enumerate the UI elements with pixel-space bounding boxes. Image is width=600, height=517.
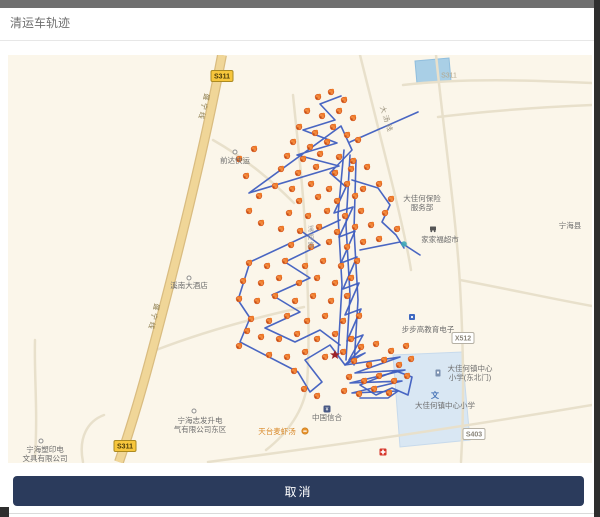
vehicle-stop-marker[interactable] — [236, 343, 242, 349]
vehicle-stop-marker[interactable] — [324, 139, 330, 145]
marker-dot — [331, 127, 333, 129]
vehicle-stop-marker[interactable] — [307, 144, 313, 150]
vehicle-stop-marker[interactable] — [396, 362, 402, 368]
marker-dot — [249, 319, 251, 321]
marker-top — [364, 378, 367, 381]
vehicle-stop-marker[interactable] — [381, 357, 387, 363]
vehicle-stop-marker[interactable] — [264, 263, 270, 269]
poi-label-text: 前达快运 — [220, 155, 250, 165]
vehicle-stop-marker[interactable] — [316, 224, 322, 230]
vehicle-stop-marker[interactable] — [294, 331, 300, 337]
vehicle-stop-marker[interactable] — [301, 386, 307, 392]
marker-top — [249, 208, 252, 211]
page-title: 清运车轨迹 — [10, 14, 70, 31]
marker-top — [299, 198, 302, 201]
vehicle-stop-marker[interactable] — [296, 124, 302, 130]
marker-top — [279, 336, 282, 339]
marker-top — [243, 278, 246, 281]
poi-label: 宁海塑印电文具有限公司 — [23, 439, 68, 463]
marker-dot — [345, 296, 347, 298]
marker-top — [310, 144, 313, 147]
vehicle-stop-marker[interactable] — [341, 388, 347, 394]
marker-dot — [259, 283, 261, 285]
vehicle-stop-marker[interactable] — [366, 362, 372, 368]
marker-dot — [339, 266, 341, 268]
marker-dot — [311, 296, 313, 298]
vehicle-stop-marker[interactable] — [284, 153, 290, 159]
marker-dot — [315, 339, 317, 341]
marker-dot — [335, 232, 337, 234]
marker-top — [391, 196, 394, 199]
vehicle-stop-marker[interactable] — [308, 181, 314, 187]
vehicle-stop-marker[interactable] — [312, 130, 318, 136]
marker-top — [239, 343, 242, 346]
marker-dot — [327, 242, 329, 244]
vehicle-stop-marker[interactable] — [382, 210, 388, 216]
poi-dot-shape — [192, 409, 196, 413]
poi-label-text: 宁海塑印电 — [26, 444, 64, 454]
trajectory-path — [238, 220, 360, 392]
marker-dot — [361, 242, 363, 244]
marker-top — [319, 224, 322, 227]
vehicle-stop-marker[interactable] — [314, 393, 320, 399]
marker-dot — [357, 316, 359, 318]
vehicle-stop-marker[interactable] — [352, 193, 358, 199]
vehicle-stop-marker[interactable] — [351, 358, 357, 364]
marker-top — [269, 318, 272, 321]
marker-top — [293, 139, 296, 142]
marker-dot — [247, 263, 249, 265]
trajectory-map[interactable]: S311S311S311X512S403盛宁线盛宁线大汤线溪南路前达快运大佳何保… — [8, 55, 592, 463]
marker-top — [347, 293, 350, 296]
vehicle-stop-marker[interactable] — [284, 354, 290, 360]
marker-dot — [309, 184, 311, 186]
vehicle-stop-marker[interactable] — [289, 186, 295, 192]
marker-top — [359, 391, 362, 394]
vehicle-stop-marker[interactable] — [376, 236, 382, 242]
marker-dot — [341, 352, 343, 354]
vehicle-stop-marker[interactable] — [326, 239, 332, 245]
marker-dot — [305, 321, 307, 323]
marker-top — [247, 328, 250, 331]
poi-label-text: 宁海县 — [559, 220, 582, 230]
vehicle-stop-marker[interactable] — [336, 108, 342, 114]
vehicle-stop-marker[interactable] — [317, 151, 323, 157]
marker-dot — [277, 339, 279, 341]
vehicle-stop-marker[interactable] — [352, 224, 358, 230]
header-divider — [0, 40, 594, 41]
vehicle-stop-marker[interactable] — [341, 97, 347, 103]
marker-dot — [316, 197, 318, 199]
vehicle-stop-marker[interactable] — [344, 181, 350, 187]
marker-top — [363, 239, 366, 242]
vehicle-stop-marker[interactable] — [408, 356, 414, 362]
marker-dot — [316, 97, 318, 99]
marker-dot — [355, 261, 357, 263]
vehicle-stop-marker[interactable] — [266, 318, 272, 324]
marker-dot — [362, 381, 364, 383]
poi-dot-icon — [187, 276, 191, 280]
vehicle-stop-marker[interactable] — [310, 293, 316, 299]
marker-top — [359, 313, 362, 316]
marker-top — [259, 193, 262, 196]
marker-dot — [241, 281, 243, 283]
marker-top — [407, 373, 410, 376]
marker-top — [355, 193, 358, 196]
cancel-button[interactable]: 取消 — [13, 476, 584, 506]
marker-top — [335, 170, 338, 173]
poi-label-text: 文具有限公司 — [23, 453, 68, 463]
vehicle-stop-marker[interactable] — [350, 158, 356, 164]
vehicle-stop-marker[interactable] — [340, 318, 346, 324]
marker-dot — [365, 167, 367, 169]
vehicle-stop-marker[interactable] — [315, 194, 321, 200]
marker-top — [406, 343, 409, 346]
marker-dot — [345, 247, 347, 249]
marker-top — [261, 334, 264, 337]
vehicle-stop-marker[interactable] — [314, 275, 320, 281]
vehicle-stop-marker[interactable] — [258, 334, 264, 340]
marker-dot — [405, 376, 407, 378]
vehicle-stop-marker[interactable] — [304, 108, 310, 114]
marker-dot — [367, 365, 369, 367]
vehicle-stop-marker[interactable] — [373, 341, 379, 347]
marker-dot — [303, 266, 305, 268]
vehicle-stop-marker[interactable] — [364, 164, 370, 170]
marker-top — [384, 357, 387, 360]
vehicle-stop-marker[interactable] — [272, 183, 278, 189]
marker-top — [267, 263, 270, 266]
marker-dot — [327, 189, 329, 191]
vehicle-stop-marker[interactable] — [391, 378, 397, 384]
marker-dot — [353, 196, 355, 198]
vehicle-stop-marker[interactable] — [350, 115, 356, 121]
vehicle-stop-marker[interactable] — [332, 280, 338, 286]
marker-dot — [333, 283, 335, 285]
marker-top — [391, 348, 394, 351]
marker-top — [304, 386, 307, 389]
vehicle-stop-marker[interactable] — [346, 374, 352, 380]
bank-glyph: ¥ — [326, 407, 329, 413]
marker-dot — [283, 261, 285, 263]
marker-top — [343, 349, 346, 352]
trajectory-path — [360, 242, 420, 255]
marker-top — [251, 316, 254, 319]
marker-dot — [342, 391, 344, 393]
marker-dot — [361, 189, 363, 191]
poi-dot-shape — [233, 150, 237, 154]
marker-dot — [297, 283, 299, 285]
marker-top — [294, 368, 297, 371]
marker-dot — [329, 301, 331, 303]
marker-dot — [409, 359, 411, 361]
vehicle-stop-marker[interactable] — [276, 336, 282, 342]
marker-top — [399, 362, 402, 365]
marker-top — [411, 356, 414, 359]
vehicle-stop-marker[interactable] — [344, 293, 350, 299]
vehicle-stop-marker[interactable] — [324, 208, 330, 214]
marker-dot — [255, 301, 257, 303]
vehicle-stop-marker[interactable] — [358, 344, 364, 350]
marker-dot — [285, 357, 287, 359]
poi-dot-shape — [187, 276, 191, 280]
marker-dot — [387, 393, 389, 395]
marker-top — [307, 108, 310, 111]
marker-dot — [382, 360, 384, 362]
marker-top — [335, 331, 338, 334]
marker-dot — [343, 216, 345, 218]
marker-top — [311, 181, 314, 184]
vehicle-stop-marker[interactable] — [313, 164, 319, 170]
marker-top — [297, 331, 300, 334]
poi-label: 宁海志发升电气有限公司东区 — [174, 409, 227, 434]
marker-top — [358, 137, 361, 140]
marker-top — [299, 280, 302, 283]
vehicle-stop-marker[interactable] — [246, 260, 252, 266]
marker-top — [254, 146, 257, 149]
school-icon: 文 — [431, 390, 440, 400]
marker-top — [292, 186, 295, 189]
vehicle-stop-marker[interactable] — [340, 349, 346, 355]
vehicle-stop-marker[interactable] — [348, 166, 354, 172]
vehicle-stop-marker[interactable] — [322, 354, 328, 360]
vehicle-stop-marker[interactable] — [368, 222, 374, 228]
vehicle-stop-marker[interactable] — [302, 263, 308, 269]
window-right-edge — [594, 0, 600, 517]
window-corner-notch — [0, 507, 9, 517]
vehicle-stop-marker[interactable] — [286, 210, 292, 216]
marker-dot — [389, 199, 391, 201]
vehicle-stop-marker[interactable] — [236, 296, 242, 302]
marker-dot — [329, 92, 331, 94]
marker-top — [317, 336, 320, 339]
marker-top — [361, 208, 364, 211]
vehicle-stop-marker[interactable] — [376, 181, 382, 187]
marker-top — [305, 263, 308, 266]
vehicle-stop-marker[interactable] — [328, 89, 334, 95]
vehicle-stop-marker[interactable] — [302, 349, 308, 355]
vehicle-stop-marker[interactable] — [305, 213, 311, 219]
vehicle-stop-marker[interactable] — [332, 170, 338, 176]
marker-top — [318, 94, 321, 97]
vehicle-stop-marker[interactable] — [240, 278, 246, 284]
marker-top — [323, 258, 326, 261]
road-badge: S403 — [463, 429, 485, 440]
marker-dot — [315, 278, 317, 280]
marker-top — [351, 166, 354, 169]
marker-dot — [372, 389, 374, 391]
marker-top — [337, 229, 340, 232]
vehicle-stop-marker[interactable] — [243, 173, 249, 179]
map-container: S311S311S311X512S403盛宁线盛宁线大汤线溪南路前达快运大佳何保… — [8, 55, 592, 463]
marker-top — [298, 170, 301, 173]
marker-top — [341, 263, 344, 266]
poi-label-text: 大佳何保险 — [403, 193, 441, 203]
vehicle-stop-marker[interactable] — [356, 391, 362, 397]
marker-dot — [296, 173, 298, 175]
vehicle-stop-marker[interactable] — [291, 368, 297, 374]
vehicle-stop-marker[interactable] — [361, 378, 367, 384]
marker-dot — [297, 201, 299, 203]
marker-top — [325, 313, 328, 316]
vehicle-stop-marker[interactable] — [248, 316, 254, 322]
vehicle-stop-marker[interactable] — [356, 313, 362, 319]
vehicle-stop-marker[interactable] — [258, 220, 264, 226]
vehicle-stop-marker[interactable] — [304, 318, 310, 324]
vehicle-stop-marker[interactable] — [328, 298, 334, 304]
marker-top — [347, 244, 350, 247]
vehicle-stop-marker[interactable] — [266, 352, 272, 358]
marker-top — [369, 362, 372, 365]
marker-top — [376, 341, 379, 344]
marker-top — [355, 224, 358, 227]
vehicle-stop-marker[interactable] — [360, 186, 366, 192]
vehicle-stop-marker[interactable] — [258, 280, 264, 286]
marker-dot — [345, 135, 347, 137]
vehicle-stop-marker[interactable] — [348, 336, 354, 342]
vehicle-stop-marker[interactable] — [246, 208, 252, 214]
marker-top — [394, 378, 397, 381]
poi-label-text: 大佳何镇中心 — [448, 363, 493, 373]
vehicle-stop-marker[interactable] — [292, 298, 298, 304]
vehicle-stop-marker[interactable] — [320, 258, 326, 264]
vehicle-stop-marker[interactable] — [386, 390, 392, 396]
marker-dot — [303, 352, 305, 354]
marker-top — [287, 153, 290, 156]
marker-dot — [337, 111, 339, 113]
vehicle-stop-marker[interactable] — [284, 313, 290, 319]
vehicle-stop-marker[interactable] — [342, 213, 348, 219]
marker-top — [333, 124, 336, 127]
poi-label: 天台麦虾汤 — [258, 426, 308, 436]
food-bowl — [303, 431, 307, 432]
marker-dot — [259, 337, 261, 339]
marker-top — [261, 220, 264, 223]
vehicle-stop-marker[interactable] — [297, 228, 303, 234]
marker-top — [308, 213, 311, 216]
vehicle-stop-marker[interactable] — [296, 280, 302, 286]
vehicle-stop-marker[interactable] — [276, 275, 282, 281]
vehicle-stop-marker[interactable] — [319, 113, 325, 119]
road-badge-label: X512 — [455, 336, 471, 343]
cart-icon — [430, 227, 436, 233]
vehicle-stop-marker[interactable] — [394, 226, 400, 232]
vehicle-stop-marker[interactable] — [354, 258, 360, 264]
poi-label-text: 中国信合 — [312, 412, 342, 422]
road-badge: S311 — [211, 71, 233, 82]
vehicle-stop-marker[interactable] — [296, 198, 302, 204]
marker-dot — [244, 176, 246, 178]
vehicle-stop-marker[interactable] — [315, 94, 321, 100]
vehicle-stop-marker[interactable] — [334, 229, 340, 235]
vehicle-stop-marker[interactable] — [322, 313, 328, 319]
vehicle-stop-marker[interactable] — [326, 186, 332, 192]
marker-dot — [349, 339, 351, 341]
marker-top — [295, 298, 298, 301]
marker-dot — [279, 229, 281, 231]
vehicle-stop-marker[interactable] — [355, 137, 361, 143]
vehicle-stop-marker[interactable] — [344, 244, 350, 250]
marker-top — [289, 210, 292, 213]
marker-top — [397, 226, 400, 229]
vehicle-stop-marker[interactable] — [254, 298, 260, 304]
poi-label: 前达快运 — [220, 150, 250, 165]
vehicle-stop-marker[interactable] — [282, 258, 288, 264]
vehicle-stop-marker[interactable] — [314, 336, 320, 342]
vehicle-stop-marker[interactable] — [295, 170, 301, 176]
vehicle-stop-marker[interactable] — [290, 139, 296, 145]
marker-dot — [333, 173, 335, 175]
marker-dot — [351, 118, 353, 120]
marker-dot — [273, 186, 275, 188]
marker-top — [281, 166, 284, 169]
marker-top — [327, 208, 330, 211]
marker-top — [371, 222, 374, 225]
marker-dot — [320, 116, 322, 118]
marker-top — [337, 198, 340, 201]
marker-top — [320, 151, 323, 154]
road-name-text: 大汤线 — [378, 105, 395, 135]
vehicle-stop-marker[interactable] — [330, 124, 336, 130]
marker-top — [246, 173, 249, 176]
vehicle-stop-marker[interactable] — [256, 193, 262, 199]
vehicle-stop-marker[interactable] — [388, 196, 394, 202]
marker-dot — [374, 344, 376, 346]
vehicle-stop-marker[interactable] — [371, 386, 377, 392]
marker-top — [318, 194, 321, 197]
poi-label: 家家福超市 — [421, 227, 459, 245]
vehicle-stop-marker[interactable] — [300, 156, 306, 162]
vehicle-stop-marker[interactable] — [332, 331, 338, 337]
vehicle-stop-marker[interactable] — [272, 293, 278, 299]
vehicle-stop-marker[interactable] — [336, 154, 342, 160]
poi-label: 宁海县 — [559, 220, 582, 230]
vehicle-stop-marker[interactable] — [278, 166, 284, 172]
vehicle-stop-marker[interactable] — [376, 373, 382, 379]
marker-top — [331, 89, 334, 92]
marker-top — [287, 313, 290, 316]
marker-dot — [259, 223, 261, 225]
marker-dot — [353, 227, 355, 229]
road-badge-label: S403 — [466, 432, 482, 439]
vehicle-stop-marker[interactable] — [278, 226, 284, 232]
vehicle-stop-marker[interactable] — [288, 242, 294, 248]
vehicle-stop-marker[interactable] — [403, 343, 409, 349]
vehicle-stop-marker[interactable] — [348, 275, 354, 281]
marker-top — [303, 156, 306, 159]
poi-label-text: 大佳何镇中心小学 — [415, 400, 475, 410]
marker-dot — [397, 365, 399, 367]
marker-top — [300, 228, 303, 231]
vehicle-stop-marker[interactable] — [334, 198, 340, 204]
vehicle-stop-marker[interactable] — [251, 146, 257, 152]
marker-top — [329, 239, 332, 242]
marker-dot — [293, 301, 295, 303]
vehicle-stop-marker[interactable] — [404, 373, 410, 379]
poi-label-text: 溪南大酒店 — [170, 280, 208, 290]
marker-top — [379, 373, 382, 376]
vehicle-stop-marker[interactable] — [388, 348, 394, 354]
vehicle-stop-marker[interactable] — [358, 208, 364, 214]
school-glyph: 文 — [431, 390, 440, 400]
window-top-bar — [0, 0, 594, 8]
vehicle-stop-marker[interactable] — [360, 239, 366, 245]
vehicle-stop-marker[interactable] — [344, 132, 350, 138]
marker-dot — [377, 184, 379, 186]
vehicle-stop-marker[interactable] — [244, 328, 250, 334]
marker-dot — [349, 169, 351, 171]
vehicle-stop-marker[interactable] — [338, 263, 344, 269]
